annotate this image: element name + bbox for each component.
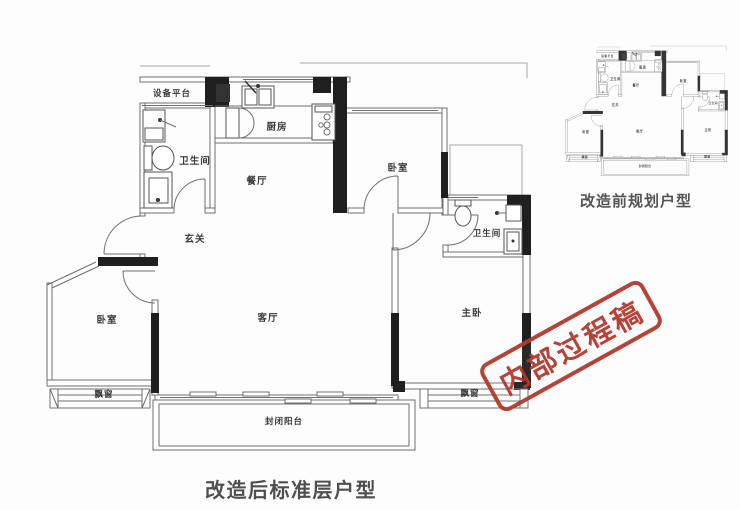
label-bedroom-top: 卧室 [387, 162, 408, 174]
mini-floorplan-before [566, 46, 728, 176]
floorplan-screenshot: 设备平台 卫生间 厨房 餐厅 卧室 卫生间 玄关 卧室 客厅 主卧 飘窗 飘窗 … [0, 0, 740, 510]
label-bathroom-right: 卫生间 [473, 228, 502, 238]
caption-after-plan: 改造后标准层户型 [185, 474, 397, 503]
window-lines [47, 80, 478, 398]
vanity-icon [504, 229, 522, 254]
label-bathroom-top: 卫生间 [179, 155, 211, 167]
caption-before-plan: 改造前规划户型 [560, 190, 712, 211]
label-bay-left: 飘窗 [94, 389, 113, 399]
label-equipment-platform: 设备平台 [153, 88, 191, 98]
label-kitchen: 厨房 [266, 121, 287, 133]
bathtub-icon [144, 172, 172, 208]
washbasin-icon [143, 110, 176, 142]
label-bay-right: 飘窗 [460, 388, 479, 398]
walls-thin [47, 77, 530, 400]
label-master: 主卧 [461, 307, 482, 319]
toilet-icon [144, 146, 174, 170]
main-floorplan-after: 设备平台 卫生间 厨房 餐厅 卧室 卫生间 玄关 卧室 客厅 主卧 飘窗 飘窗 … [47, 63, 531, 450]
label-balcony: 封闭阳台 [265, 416, 303, 426]
toilet2-icon [455, 200, 471, 226]
label-living: 客厅 [256, 312, 278, 324]
washbasin2-icon [495, 205, 521, 221]
floorplan-canvas: 设备平台 卫生间 厨房 餐厅 卧室 卫生间 玄关 卧室 客厅 主卧 飘窗 飘窗 … [0, 0, 740, 510]
label-bedroom-left: 卧室 [96, 314, 117, 326]
label-dining: 餐厅 [245, 175, 267, 187]
fridge-icon [226, 108, 254, 138]
label-entry: 玄关 [184, 233, 205, 245]
